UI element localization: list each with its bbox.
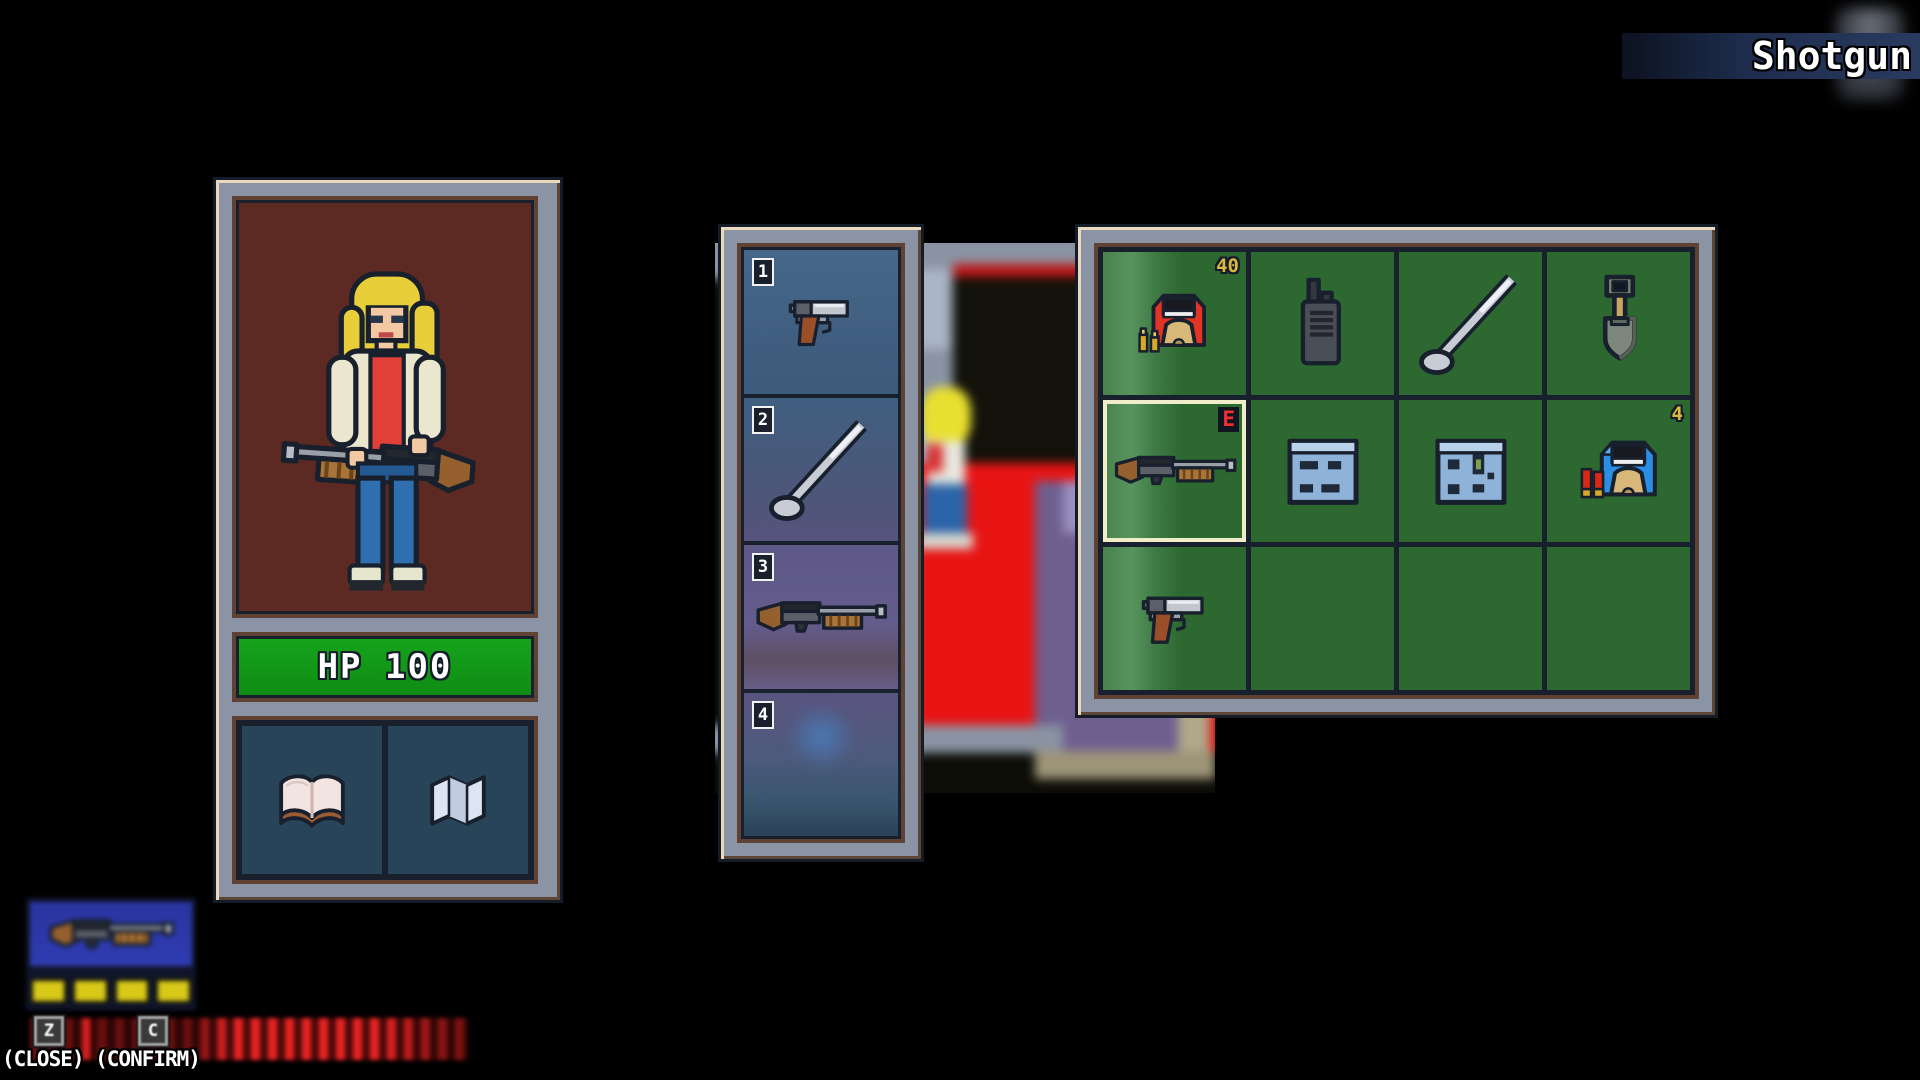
inventory-cell-pistol[interactable] bbox=[1103, 547, 1246, 690]
inventory-cell-walkie-talkie[interactable] bbox=[1251, 252, 1394, 395]
slot-number-3: 3 bbox=[752, 553, 774, 581]
ammo-pip-row bbox=[30, 978, 192, 1004]
inventory-grid: 40 E bbox=[1098, 247, 1695, 695]
hotbar-panel: 1 2 3 4 bbox=[718, 224, 924, 862]
key-z[interactable]: Z bbox=[34, 1016, 64, 1046]
inventory-cell-blue-note-2[interactable] bbox=[1399, 400, 1542, 543]
walkie-talkie-icon bbox=[1297, 277, 1349, 369]
hotbar-slot-1[interactable]: 1 bbox=[744, 250, 898, 394]
blue-note-icon bbox=[1285, 433, 1361, 509]
game-screen: Shotgun HP 100 bbox=[0, 0, 1920, 1080]
controls-hint: (CLOSE) (CONFIRM) bbox=[2, 1047, 200, 1071]
inventory-cell-blue-note[interactable] bbox=[1251, 400, 1394, 543]
hotbar-slot-3[interactable]: 3 bbox=[744, 545, 898, 689]
inventory-cell-shotgun-selected[interactable]: E bbox=[1103, 400, 1246, 543]
scene-character-shoes bbox=[917, 533, 973, 549]
ammo-pip bbox=[155, 978, 192, 1004]
slot-number-4: 4 bbox=[752, 701, 774, 729]
item-name-banner: Shotgun bbox=[1622, 33, 1920, 79]
shotgun-icon bbox=[1112, 451, 1238, 490]
equipped-weapon-display bbox=[26, 898, 196, 1010]
character-panel: HP 100 bbox=[213, 177, 563, 903]
inventory-cell-shovel[interactable] bbox=[1547, 252, 1690, 395]
inventory-cell-empty[interactable] bbox=[1251, 547, 1394, 690]
shotgun-icon bbox=[47, 914, 175, 954]
equipped-badge: E bbox=[1218, 407, 1239, 432]
portrait-girl-sprite bbox=[260, 249, 510, 603]
hotbar-slot-4[interactable]: 4 bbox=[744, 693, 898, 837]
ammo-pip bbox=[30, 978, 67, 1004]
slot-number-1: 1 bbox=[752, 258, 774, 286]
shotgun-icon bbox=[754, 596, 888, 638]
pocket-frame bbox=[232, 716, 538, 884]
hp-bar: HP 100 bbox=[236, 636, 534, 698]
character-portrait bbox=[236, 200, 534, 614]
inventory-cell-golf-club[interactable] bbox=[1399, 252, 1542, 395]
hp-text: HP 100 bbox=[318, 647, 453, 687]
inventory-cell-empty[interactable] bbox=[1547, 547, 1690, 690]
slot-number-2: 2 bbox=[752, 406, 774, 434]
hotbar-slot-2[interactable]: 2 bbox=[744, 398, 898, 542]
item-name-text: Shotgun bbox=[1752, 34, 1912, 78]
inventory-cell-shell-box-blue[interactable]: 4 bbox=[1547, 400, 1690, 543]
blue-note-icon bbox=[1433, 433, 1509, 509]
key-z-label: Z bbox=[44, 1021, 54, 1041]
pistol-icon bbox=[786, 293, 856, 350]
shell-box-icon bbox=[1579, 436, 1659, 505]
scene-character-legs bbox=[923, 484, 967, 536]
book-icon bbox=[276, 769, 348, 831]
scene-character-hair bbox=[921, 387, 971, 447]
ammo-box-icon bbox=[1137, 288, 1213, 359]
inventory-panel: 40 E bbox=[1075, 224, 1718, 718]
pistol-icon bbox=[1139, 589, 1211, 648]
blurred-background-blob bbox=[787, 704, 856, 769]
key-c-label: C bbox=[148, 1021, 158, 1041]
inventory-cell-shell-box-red[interactable]: 40 bbox=[1103, 252, 1246, 395]
pocket-slot-map[interactable] bbox=[388, 726, 528, 874]
key-c[interactable]: C bbox=[138, 1016, 168, 1046]
item-count: 4 bbox=[1672, 405, 1683, 424]
inventory-cell-empty[interactable] bbox=[1399, 547, 1542, 690]
map-icon bbox=[427, 772, 489, 829]
portrait-frame bbox=[232, 196, 538, 618]
golf-club-icon bbox=[769, 417, 873, 521]
hp-bar-frame: HP 100 bbox=[232, 632, 538, 702]
item-count: 40 bbox=[1216, 257, 1239, 276]
pocket-slot-journal[interactable] bbox=[242, 726, 382, 874]
ammo-pip bbox=[72, 978, 109, 1004]
equipped-weapon-screen bbox=[30, 902, 192, 966]
ammo-pip bbox=[114, 978, 151, 1004]
shovel-icon bbox=[1596, 274, 1642, 372]
golf-club-icon bbox=[1419, 271, 1523, 375]
